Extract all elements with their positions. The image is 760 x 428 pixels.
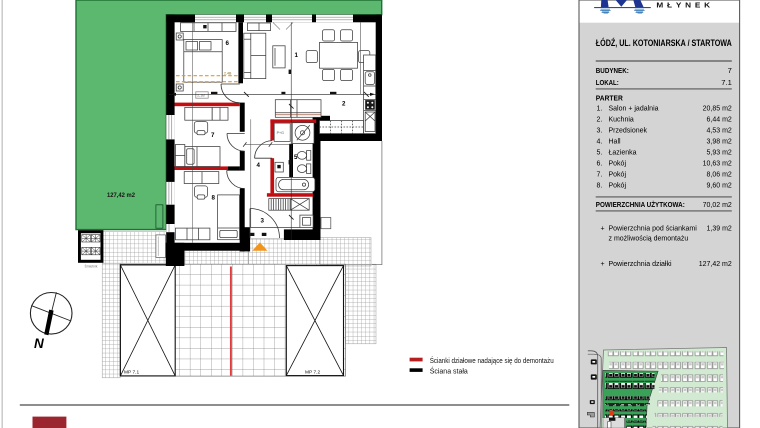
svg-text:Ścianki działowe nadające się: Ścianki działowe nadające się do demonta… <box>430 356 554 365</box>
svg-text:6.: 6. <box>597 161 603 168</box>
svg-text:20,85 m2: 20,85 m2 <box>703 106 732 113</box>
svg-text:8: 8 <box>212 195 216 202</box>
svg-text:127,42 m2: 127,42 m2 <box>699 261 732 268</box>
svg-text:Łazienka: Łazienka <box>609 150 637 157</box>
svg-text:POWIERZCHNIA UŻYTKOWA:: POWIERZCHNIA UŻYTKOWA: <box>596 200 685 209</box>
svg-text:Ściana stała: Ściana stała <box>430 367 468 376</box>
svg-text:5,93 m2: 5,93 m2 <box>707 150 732 157</box>
svg-text:6: 6 <box>226 40 230 47</box>
svg-text:5.: 5. <box>597 150 603 157</box>
svg-text:9,60 m2: 9,60 m2 <box>707 183 732 190</box>
svg-text:4,53 m2: 4,53 m2 <box>707 128 732 135</box>
svg-text:Pokój: Pokój <box>609 172 627 179</box>
svg-text:P+G: P+G <box>277 131 284 135</box>
svg-text:2,4B: 2,4B <box>224 71 232 75</box>
svg-text:PARTER: PARTER <box>596 93 623 102</box>
svg-text:7.1: 7.1 <box>721 78 732 87</box>
svg-text:Śmietnik: Śmietnik <box>84 263 97 268</box>
svg-text:5: 5 <box>294 154 298 161</box>
svg-text:6,44 m2: 6,44 m2 <box>707 117 732 124</box>
svg-text:1: 1 <box>295 52 299 59</box>
svg-text:Salon + jadalnia: Salon + jadalnia <box>609 106 659 113</box>
svg-text:8.: 8. <box>597 183 603 190</box>
svg-text:8,06 m2: 8,06 m2 <box>707 172 732 179</box>
svg-text:MP 7.2: MP 7.2 <box>305 370 320 376</box>
svg-text:Przedsionek: Przedsionek <box>609 128 648 135</box>
svg-text:Hall: Hall <box>609 139 622 146</box>
svg-text:z możliwością demontażu: z możliwością demontażu <box>609 236 689 243</box>
svg-text:ŁÓDŹ, UL. KOTONIARSKA / STARTO: ŁÓDŹ, UL. KOTONIARSKA / STARTOWA <box>596 37 732 48</box>
svg-text:+: + <box>601 261 605 268</box>
svg-text:MP 7.1: MP 7.1 <box>124 370 139 376</box>
svg-text:7.: 7. <box>597 172 603 179</box>
svg-text:70,02 m2: 70,02 m2 <box>703 202 732 209</box>
svg-text:Powierzchnia pod ściankami: Powierzchnia pod ściankami <box>609 226 698 233</box>
svg-text:1,39 m2: 1,39 m2 <box>707 226 732 233</box>
svg-text:Powierzchnia działki: Powierzchnia działki <box>609 261 672 268</box>
svg-text:N: N <box>34 336 44 351</box>
svg-text:2: 2 <box>342 101 346 108</box>
svg-text:Kuchnia: Kuchnia <box>609 117 634 124</box>
svg-text:LOKAL:: LOKAL: <box>596 78 619 87</box>
svg-text:2.: 2. <box>597 117 603 124</box>
svg-text:10,63 m2: 10,63 m2 <box>703 161 732 168</box>
svg-text:Pokój: Pokój <box>609 183 627 190</box>
svg-text:3,98 m2: 3,98 m2 <box>707 139 732 146</box>
svg-text:3: 3 <box>261 218 265 225</box>
svg-text:1.: 1. <box>597 106 603 113</box>
svg-text:127,42 m2: 127,42 m2 <box>107 192 135 199</box>
svg-text:4.: 4. <box>597 139 603 146</box>
svg-text:Pokój: Pokój <box>609 161 627 168</box>
svg-text:4: 4 <box>257 162 261 169</box>
svg-text:3.: 3. <box>597 128 603 135</box>
svg-text:7: 7 <box>211 132 215 139</box>
svg-text:BUDYNEK:: BUDYNEK: <box>596 66 629 75</box>
svg-text:MŁYNEK: MŁYNEK <box>656 2 714 9</box>
svg-text:7: 7 <box>728 66 732 75</box>
svg-text:+: + <box>601 226 605 233</box>
